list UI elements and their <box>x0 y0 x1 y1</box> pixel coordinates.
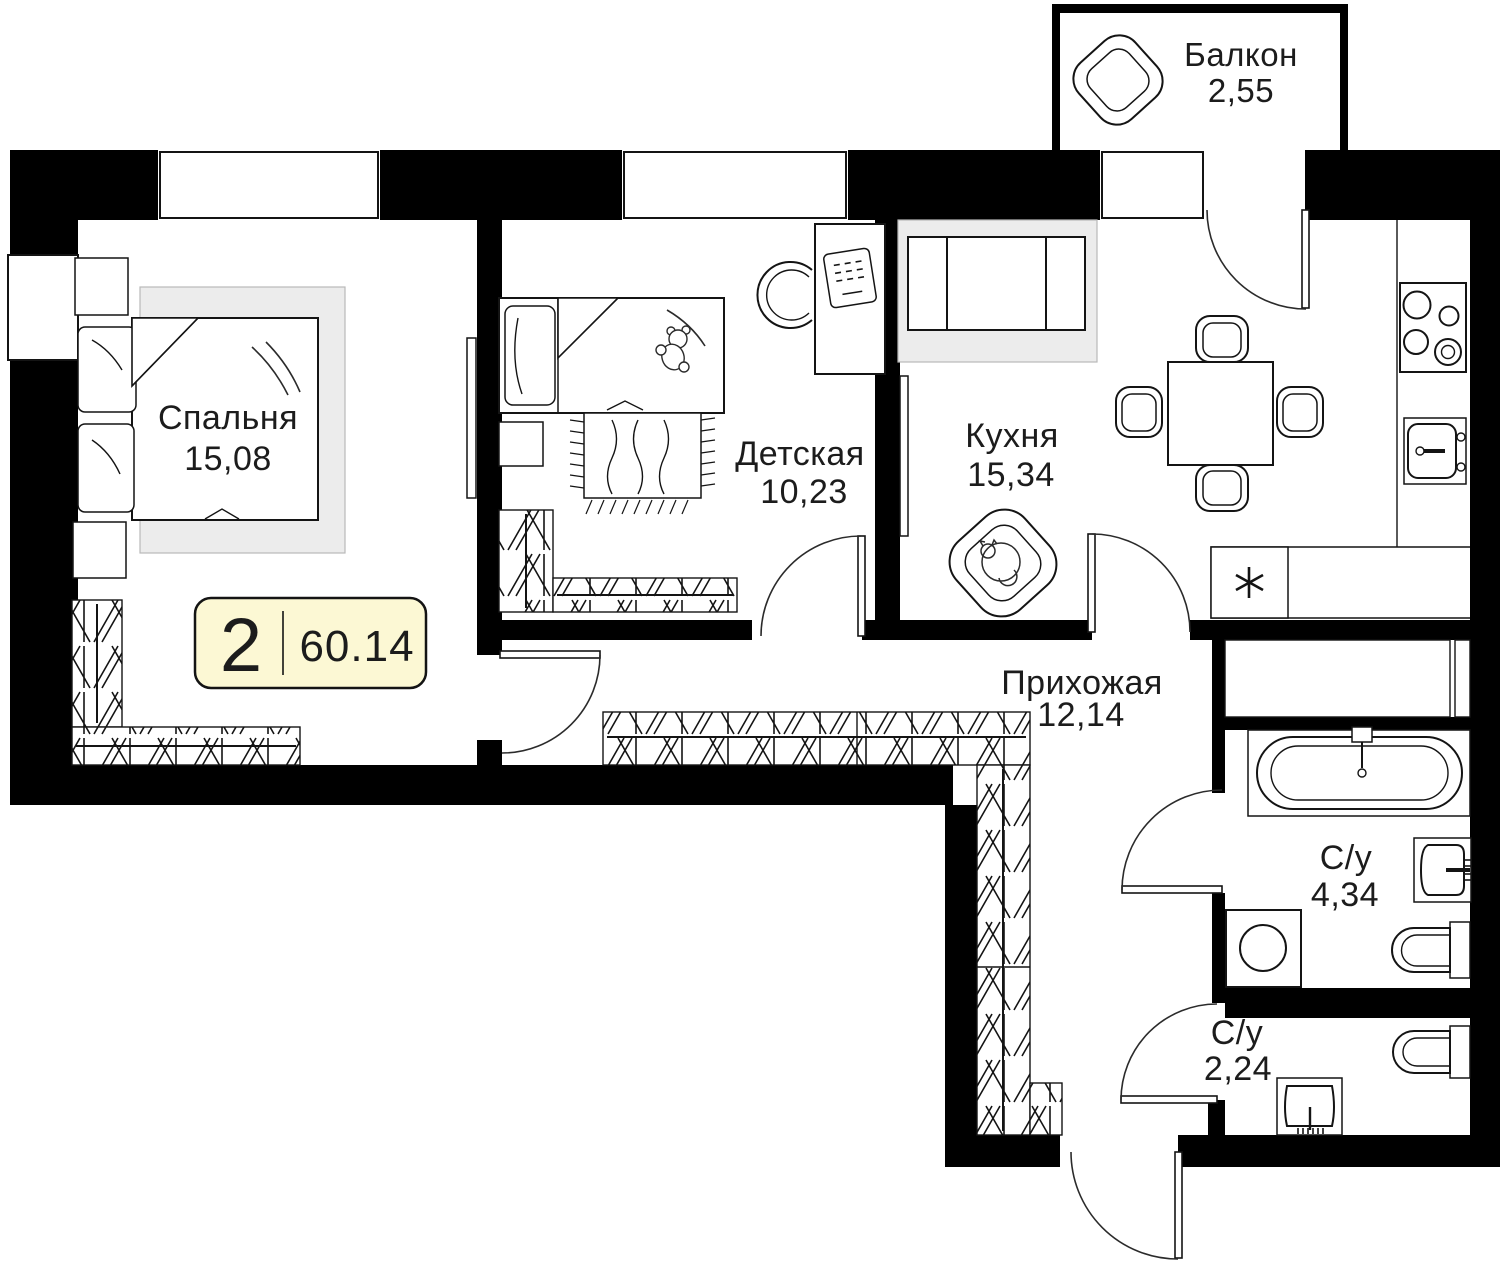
children-window <box>624 152 846 218</box>
desk-icon <box>815 224 885 374</box>
room-label: С/у <box>1320 839 1373 877</box>
room-label: Детская <box>735 435 864 473</box>
children-door <box>761 536 865 636</box>
floor-plan: Спальня 15,08 <box>0 0 1500 1262</box>
children-bed-icon <box>499 298 724 413</box>
bedroom-side-window <box>8 255 78 360</box>
kitchen-window <box>1102 152 1203 218</box>
plan-badge: 2 60.14 <box>195 598 426 688</box>
bathroom-sink-icon <box>1414 838 1472 902</box>
armchair-icon <box>938 498 1068 628</box>
bathtub-icon <box>1248 727 1470 816</box>
stove-icon <box>1400 283 1466 372</box>
hall-closet-icon <box>1225 640 1470 717</box>
tv-icon <box>467 338 476 498</box>
room-wc: С/у 2,24 <box>1204 1014 1470 1135</box>
nightstand-icon <box>75 258 128 315</box>
laptop-icon <box>823 248 877 309</box>
tv-icon <box>900 376 908 536</box>
desk-chair-icon <box>757 262 812 328</box>
balcony-door <box>1207 210 1309 309</box>
room-area: 4,34 <box>1311 876 1379 914</box>
room-area: 10,23 <box>760 473 848 511</box>
room-area: 15,34 <box>967 456 1055 494</box>
children-wardrobe-icon <box>499 510 737 612</box>
total-area: 60.14 <box>299 622 414 671</box>
children-rug-icon <box>570 413 715 514</box>
nightstand-icon <box>499 422 543 466</box>
bedroom-window <box>160 152 378 218</box>
nightstand-icon <box>73 522 126 578</box>
dining-table-icon <box>1116 316 1323 511</box>
room-balcony: Балкон 2,55 <box>1064 26 1297 133</box>
bedroom-door <box>500 651 600 753</box>
room-area: 2,24 <box>1204 1050 1272 1088</box>
sofa-icon <box>898 220 1097 362</box>
room-label: Кухня <box>965 417 1059 455</box>
room-bathroom: С/у 4,34 <box>1226 727 1472 987</box>
bathroom-door <box>1122 790 1222 893</box>
kitchen-sink-icon <box>1404 418 1466 484</box>
toilet-icon <box>1392 922 1470 978</box>
room-children: Детская 10,23 <box>499 224 885 612</box>
room-label: С/у <box>1211 1014 1264 1052</box>
floor-plan-page: Спальня 15,08 <box>0 0 1500 1262</box>
wc-door <box>1121 1004 1217 1103</box>
room-label: Балкон <box>1184 36 1298 73</box>
balcony-chair-icon <box>1064 26 1171 133</box>
wc-sink-icon <box>1277 1078 1342 1135</box>
washing-machine-icon <box>1226 910 1301 987</box>
room-area: 2,55 <box>1208 72 1274 109</box>
room-kitchen: Кухня 15,34 <box>898 220 1470 628</box>
kitchen-door <box>1088 534 1190 632</box>
room-label: Спальня <box>158 399 298 437</box>
entrance-door <box>1071 1152 1182 1259</box>
room-area: 15,08 <box>184 440 272 478</box>
toilet-icon <box>1393 1026 1470 1078</box>
room-area: 12,14 <box>1037 696 1125 734</box>
rooms-count: 2 <box>220 603 262 688</box>
